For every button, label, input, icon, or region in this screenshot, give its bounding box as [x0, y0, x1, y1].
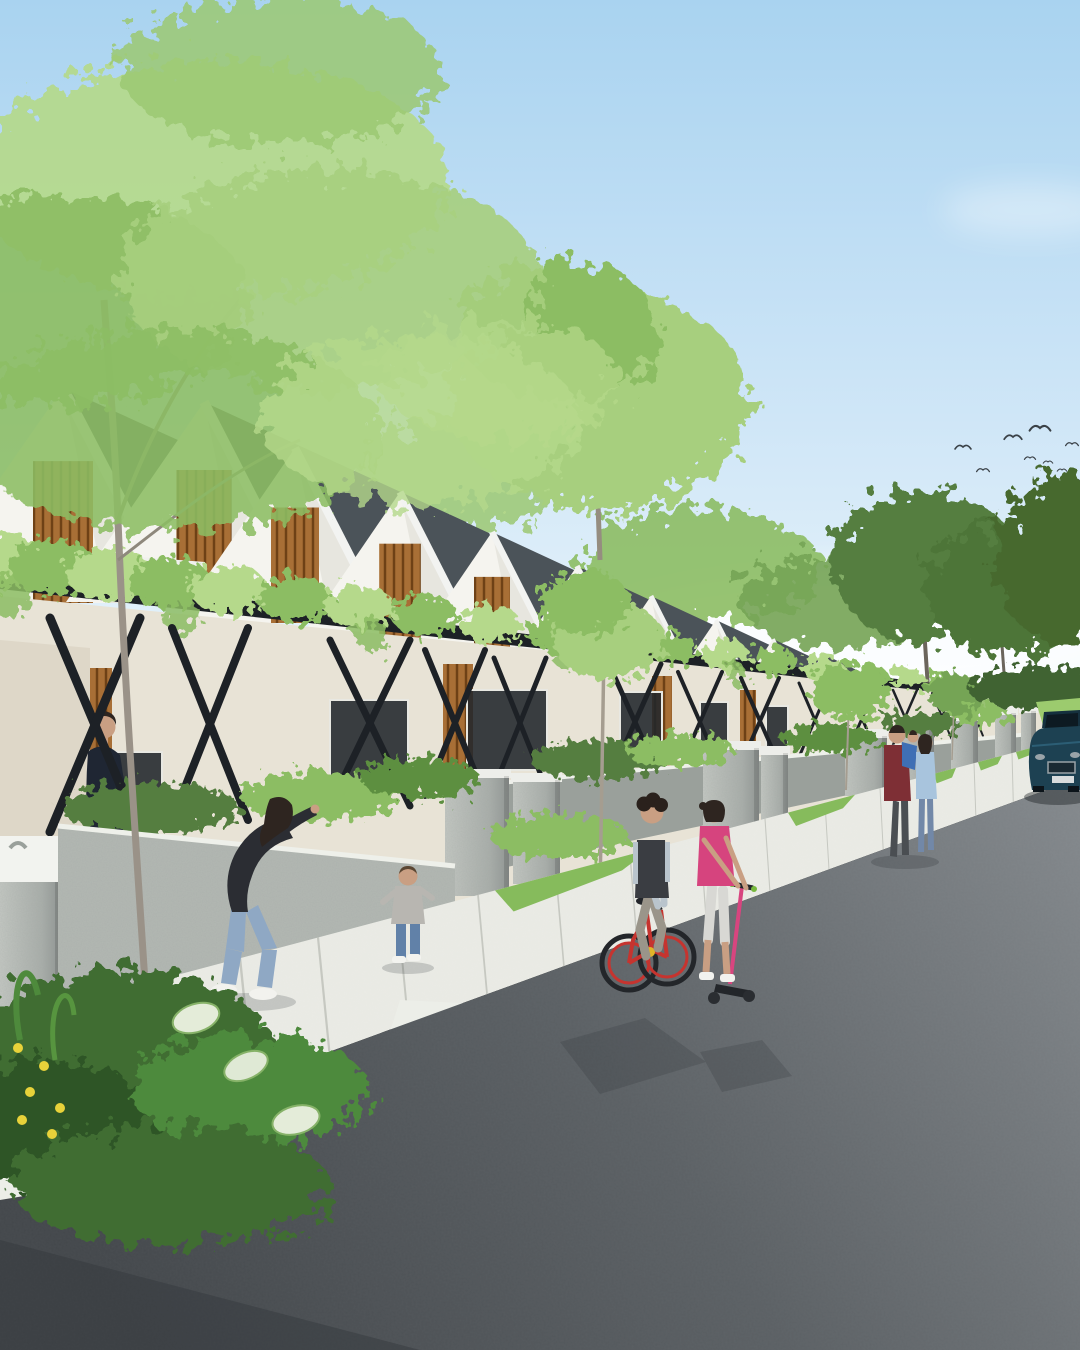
yellow-flower — [17, 1115, 27, 1125]
street-rendering — [0, 0, 1080, 1350]
yellow-flower — [47, 1129, 57, 1139]
pergola-vine-clump — [888, 667, 924, 689]
shrub — [490, 814, 630, 858]
hanging-vine — [162, 593, 199, 634]
pergola-vine-clump — [191, 566, 269, 614]
yellow-flower — [39, 1061, 49, 1071]
shrub — [625, 734, 735, 766]
yellow-flower — [25, 1087, 35, 1097]
yellow-flower — [13, 1043, 23, 1053]
yellow-flower — [55, 1103, 65, 1113]
pergola-vine-clump — [459, 605, 521, 643]
pergola-vine-clump — [258, 576, 332, 622]
shrub — [780, 724, 880, 752]
shrub — [60, 782, 240, 834]
street-rendering-canvas — [0, 0, 1080, 1350]
mailbox — [0, 836, 58, 882]
pergola-vine-clump — [392, 595, 458, 636]
shrub — [360, 758, 480, 798]
pergola-vine-clump — [753, 648, 797, 675]
hanging-vine — [354, 616, 386, 651]
